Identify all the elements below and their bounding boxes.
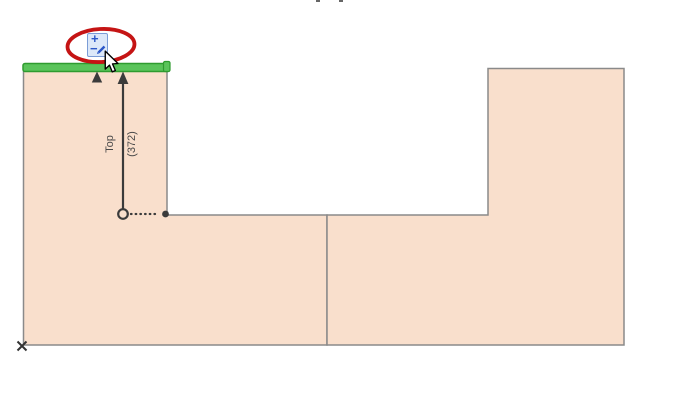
zone-right-polygon[interactable] [327, 69, 624, 346]
selected-edge-end-handle[interactable] [164, 62, 171, 72]
arrow-cursor-icon [104, 50, 119, 74]
selected-edge-highlight[interactable] [23, 64, 169, 72]
origin-x-marker [18, 342, 27, 351]
corner-node-dot[interactable] [162, 211, 169, 218]
zone-left-polygon[interactable] [24, 69, 328, 346]
drawing-layer [0, 0, 680, 404]
cad-canvas: Top (372) + − [0, 0, 680, 404]
